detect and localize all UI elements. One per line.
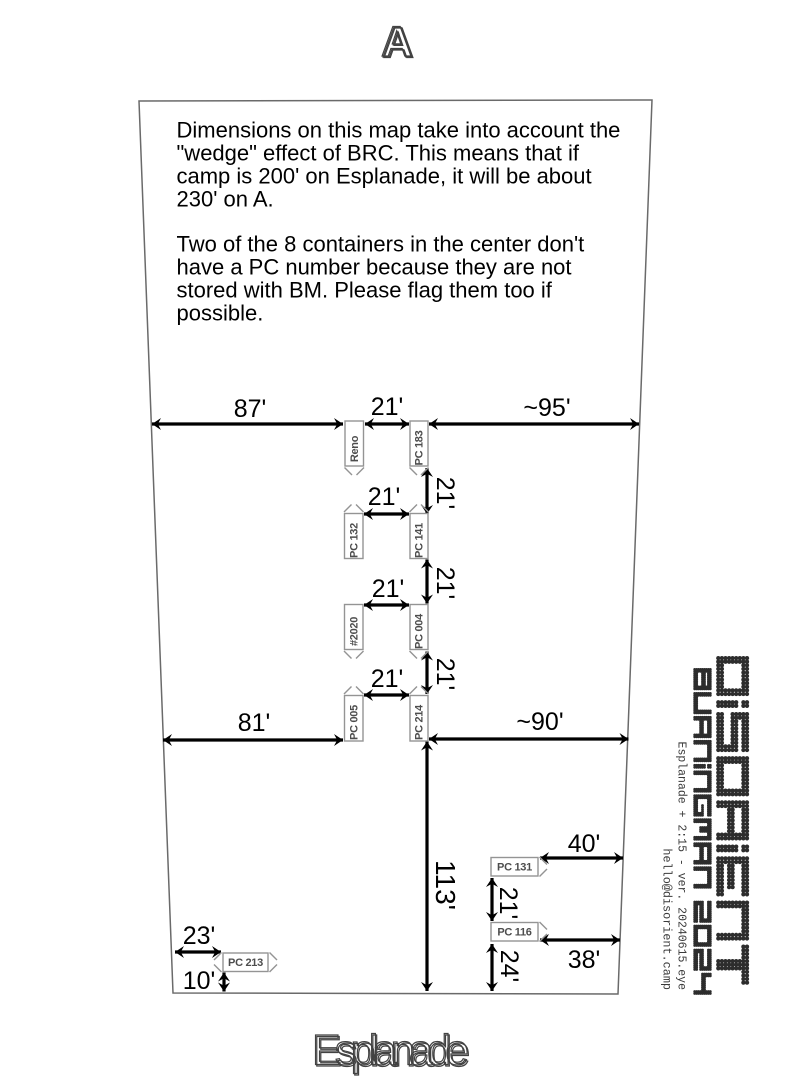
- svg-text:~95': ~95': [523, 394, 570, 422]
- svg-text:stored with BM. Please flag th: stored with BM. Please flag them too if: [177, 278, 553, 303]
- svg-text:Dimensions on this map take in: Dimensions on this map take into account…: [177, 118, 621, 143]
- svg-text:PC 183: PC 183: [414, 430, 426, 465]
- svg-text:Reno: Reno: [349, 435, 361, 462]
- svg-text:230' on A.: 230' on A.: [177, 187, 274, 212]
- svg-text:Esplanade: Esplanade: [313, 1028, 470, 1076]
- svg-text:21': 21': [431, 658, 459, 691]
- svg-text:Two of the 8 containers in the: Two of the 8 containers in the center do…: [177, 232, 585, 257]
- svg-text:PC 132: PC 132: [349, 523, 361, 558]
- svg-text:21': 21': [371, 665, 404, 693]
- svg-text:87': 87': [234, 395, 267, 423]
- svg-text:PC 141: PC 141: [414, 523, 426, 558]
- svg-text:40': 40': [568, 830, 601, 858]
- svg-text:21': 21': [368, 483, 401, 511]
- svg-text:#2020: #2020: [349, 617, 361, 646]
- svg-text:PC 214: PC 214: [414, 704, 426, 740]
- svg-text:38': 38': [568, 946, 601, 974]
- svg-text:21': 21': [371, 393, 404, 421]
- svg-text:21': 21': [494, 887, 522, 920]
- svg-text:23': 23': [183, 922, 216, 950]
- svg-text:Esplanade + 2:15 - ver. 202406: Esplanade + 2:15 - ver. 20240615.eye: [675, 742, 688, 991]
- svg-text:10': 10': [183, 967, 216, 995]
- svg-text:A: A: [382, 19, 413, 67]
- svg-text:21': 21': [431, 477, 459, 510]
- svg-text:hello@disorient.camp: hello@disorient.camp: [660, 848, 674, 990]
- svg-text:113': 113': [430, 860, 461, 910]
- svg-text:21': 21': [372, 575, 405, 603]
- svg-text:81': 81': [238, 709, 271, 737]
- svg-text:PC 213: PC 213: [228, 957, 263, 969]
- svg-text:PC 116: PC 116: [497, 927, 531, 939]
- svg-text:camp is 200' on Esplanade, it: camp is 200' on Esplanade, it will be ab…: [177, 164, 592, 189]
- svg-text:PC 131: PC 131: [497, 862, 532, 874]
- svg-text:"wedge" effect of BRC. This me: "wedge" effect of BRC. This means that i…: [177, 141, 580, 166]
- svg-text:have a PC number because they: have a PC number because they are not: [177, 255, 572, 280]
- svg-text:~90': ~90': [516, 708, 563, 736]
- svg-text:possible.: possible.: [177, 301, 264, 326]
- svg-text:PC 005: PC 005: [349, 705, 361, 740]
- svg-text:24': 24': [495, 950, 523, 983]
- svg-text:PC 004: PC 004: [414, 613, 426, 649]
- svg-text:21': 21': [431, 567, 459, 600]
